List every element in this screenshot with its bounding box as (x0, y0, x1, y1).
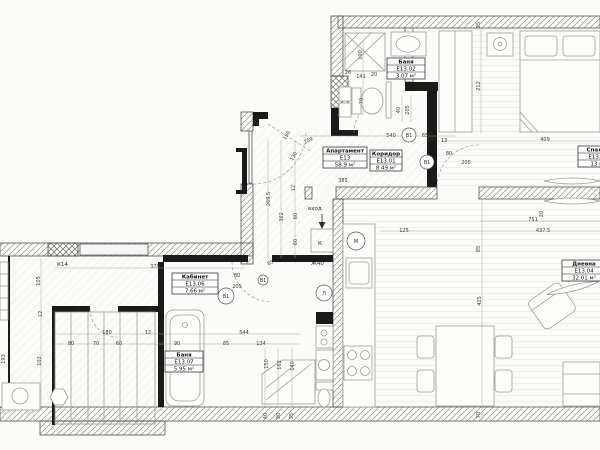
duct-box (316, 312, 333, 324)
room-name: Спалня (587, 148, 600, 154)
towel-radiator (386, 82, 391, 118)
bath1-left-wall (331, 16, 343, 76)
room-code: Е13.07 (174, 360, 194, 366)
bath1-corner-wall (405, 82, 438, 91)
dimension-label: 193 (1, 354, 7, 364)
dimension-label: 409 (540, 137, 550, 143)
window-segment (80, 244, 148, 255)
dimension-label: 150 (264, 359, 270, 369)
dimension-label: 60 (293, 239, 299, 245)
dimension-label: 12 (291, 185, 297, 191)
room-area: 58.9 м² (335, 162, 355, 169)
top-wall (338, 16, 600, 28)
dimension-label: 70 (476, 412, 482, 418)
annotation-label: вход (308, 206, 322, 212)
tag-label: Л (322, 291, 326, 297)
bottom-wall (0, 407, 600, 421)
dimension-label: 40 (263, 413, 269, 419)
dimension-label: 212 (476, 81, 482, 91)
mid-wall-a (305, 187, 312, 199)
tag-label: В1 (406, 133, 413, 139)
dimension-label: 35 (289, 413, 295, 419)
dimension-label: 141 (356, 74, 366, 80)
room-label-Е13.03: СпалняЕ13.0313 м² (578, 146, 600, 168)
radiator-left (0, 262, 8, 320)
dimension-label: 26 (345, 70, 351, 76)
kitchen-counter (343, 224, 375, 407)
hall-floor (253, 187, 305, 264)
room-name: Апартамент (326, 149, 365, 155)
dimension-label: 385 (338, 178, 348, 184)
dimension-label: 80 (446, 151, 452, 157)
room-code: Е13.06 (185, 282, 205, 288)
room-label-Е13.06: КабинетЕ13.067.66 м² (172, 273, 218, 295)
tag-label: М (354, 239, 358, 245)
room-label-Е13.01: КоридорЕ13.018.49 м² (370, 150, 402, 172)
room-area: 8.49 м² (376, 165, 396, 172)
room-label-Е13.04: ДневнаЕ13.0432.01 м² (562, 260, 600, 282)
dimension-label: 12 (145, 330, 151, 336)
dimension-label: 162 (277, 360, 283, 370)
dimension-label: 85 (223, 341, 229, 347)
entrance-door-leaf (249, 131, 252, 183)
sideboard (563, 362, 600, 406)
floor-plan-page: 3855406510910132521240926141201007040205… (0, 0, 600, 450)
dimension-label: 100 (358, 50, 364, 60)
dimension-label: 205 (461, 160, 471, 166)
room-code: Е13.02 (396, 67, 415, 73)
dimension-label: 60 (293, 213, 299, 219)
section-stub-top (236, 148, 246, 152)
dining-table (436, 326, 494, 406)
dimension-label: 85 (476, 246, 482, 252)
room-code: Е13.03 (588, 155, 600, 161)
dimension-label: 362 (279, 212, 285, 222)
room-area: 32.01 м² (572, 275, 596, 282)
dimension-label: 379 (150, 264, 160, 270)
dimension-label: 269.5 (266, 192, 272, 206)
mid-wall-b (336, 187, 437, 199)
room-code: Е13 (340, 156, 351, 162)
room-code: Е13.04 (574, 269, 594, 275)
wing-wall-a (163, 255, 248, 262)
dimension-label: 540 (386, 133, 396, 139)
dimension-label: 134 (256, 341, 266, 347)
tag-label: В1 (424, 160, 431, 166)
room-area: 7.66 м² (185, 288, 205, 295)
floor-plan-svg: 3855406510910132521240926141201007040205… (0, 0, 600, 450)
room-code: Е13.01 (376, 159, 395, 165)
closet-wall-a (52, 306, 90, 312)
dimension-label: 12 (157, 341, 163, 347)
bed-pillow-left (525, 36, 557, 56)
room-name: Кабинет (182, 274, 209, 281)
left-wall-upper (241, 112, 253, 131)
toilet2-bowl (318, 389, 330, 407)
desk (2, 383, 40, 410)
room-area: 13 м² (590, 161, 600, 168)
column-k14 (48, 243, 78, 256)
dimension-label: 70 (93, 341, 99, 347)
dimension-label: 40 (396, 107, 402, 113)
section-bar (242, 148, 247, 194)
dimension-label: 102 (37, 356, 43, 366)
dimension-label: 60 (116, 341, 122, 347)
dimension-label: 125 (399, 228, 409, 234)
dimension-label: 140 (290, 361, 296, 371)
dimension-label: 205 (405, 105, 411, 115)
wall-box-1 (339, 87, 351, 101)
section-stub-bottom (236, 190, 246, 194)
chair (495, 336, 512, 358)
chair (417, 370, 434, 392)
dimension-label: 437.5 (536, 228, 550, 234)
room-label-Е13: АпартаментЕ1358.9 м² (323, 147, 367, 169)
dimension-label: 13 (441, 138, 447, 144)
dimension-label: 751 (528, 217, 538, 223)
dimension-label: 25 (476, 22, 482, 28)
room-name: Баня (398, 60, 414, 66)
chair (417, 336, 434, 358)
dimension-label: 80 (68, 341, 74, 347)
dimension-label: 20 (539, 211, 545, 217)
closet-side-wall (52, 306, 55, 425)
wardrobe (439, 31, 472, 132)
dimension-label: 25 (254, 119, 260, 125)
mid-wall-c (479, 187, 600, 199)
dimension-label: 544 (239, 330, 249, 336)
room-area: 3.07 м² (396, 73, 416, 80)
chair (495, 370, 512, 392)
dimension-label: 180 (102, 330, 112, 336)
wall-box-2 (339, 103, 351, 117)
dimension-label: 425 (477, 296, 483, 306)
bath2-left-wall (158, 262, 164, 407)
dimension-label: 12 (38, 311, 44, 317)
dimension-label: 105 (36, 276, 42, 286)
room-label-Е13.02: БаняЕ13.023.07 м² (387, 58, 425, 80)
tag-label: В1 (223, 294, 230, 300)
annotation-label: К (318, 241, 322, 247)
kitchen-wall (333, 199, 343, 407)
dimension-label: 20 (371, 72, 377, 78)
closet-wall-b (118, 306, 158, 312)
dimension-label: 205 (232, 284, 242, 290)
bottom-wall-step (40, 421, 165, 435)
dimension-label: 90 (276, 413, 282, 419)
room-name: Коридор (372, 152, 400, 158)
annotation-label: К14 (57, 262, 68, 268)
dimension-label: 70 (359, 98, 365, 104)
room-area: 5.95 м² (174, 366, 194, 373)
annotation-label: Ж40 (311, 261, 324, 267)
room-name: Дневна (572, 262, 596, 268)
bed-pillow-right (563, 36, 595, 56)
stool-hexagon (50, 389, 68, 405)
dimension-label: 90 (174, 341, 180, 347)
nightstand (487, 33, 513, 56)
tag-label: В1 (260, 278, 267, 284)
dimension-label: 80 (234, 273, 240, 279)
room-label-Е13.07: БаняЕ13.075.95 м² (165, 351, 203, 373)
room-name: Баня (176, 353, 192, 359)
